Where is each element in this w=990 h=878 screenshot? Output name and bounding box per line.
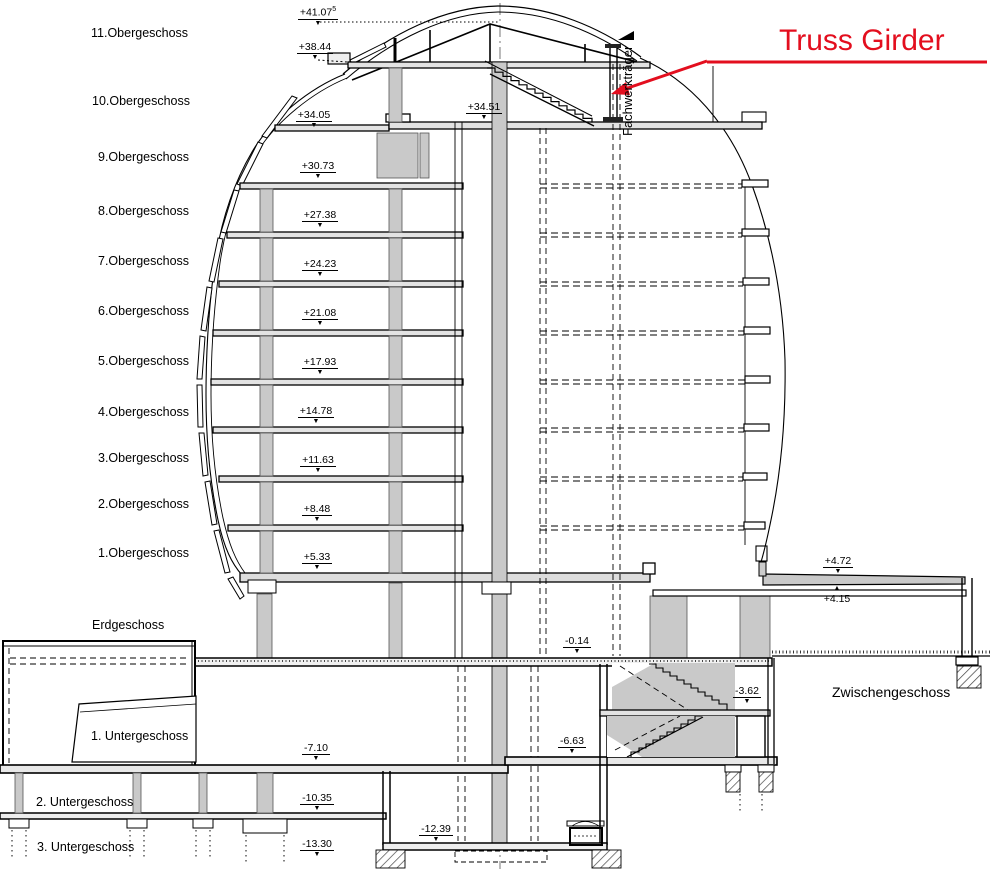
elevation-triangle-down-icon: ▼ <box>296 517 338 523</box>
elevation-triangle-up-icon: ▲ <box>816 586 858 592</box>
floor-label-8-obergeschoss: 8.Obergeschoss <box>98 204 189 218</box>
foundation-hatch <box>957 666 981 688</box>
elevation-marker-10-35: -10.35▼ <box>296 792 338 812</box>
elevation-triangle-down-icon: ▼ <box>296 806 338 812</box>
elevation-marker-34-51: +34.51▼ <box>463 101 505 121</box>
elevation-triangle-down-icon: ▼ <box>297 468 339 474</box>
right-facade <box>640 58 785 562</box>
elevation-marker-5-33: +5.33▼ <box>296 551 338 571</box>
elevation-marker-30-73: +30.73▼ <box>297 160 339 180</box>
elevation-marker-0-14: -0.14▼ <box>556 635 598 655</box>
floor-label-11-obergeschoss: 11.Obergeschoss <box>91 26 188 40</box>
elevation-marker-3-62: -3.62▼ <box>726 685 768 705</box>
floor-label-3-obergeschoss: 3.Obergeschoss <box>98 451 189 465</box>
elevation-marker-24-23: +24.23▼ <box>299 258 341 278</box>
elevation-triangle-down-icon: ▼ <box>295 756 337 762</box>
elevation-marker-13-30: -13.30▼ <box>296 838 338 858</box>
section-drawing: 11.Obergeschoss 10.Obergeschoss 9.Oberge… <box>0 0 990 878</box>
truss-girder-annotation-label: Truss Girder <box>779 24 990 58</box>
floor-label-3-untergeschoss: 3. Untergeschoss <box>37 840 134 854</box>
elevation-marker-27-38: +27.38▼ <box>299 209 341 229</box>
elevation-triangle-down-icon: ▼ <box>295 419 337 425</box>
floor-label-1-untergeschoss: 1. Untergeschoss <box>91 729 188 743</box>
elevation-marker-4-15: ▲+4.15 <box>816 586 858 605</box>
floor-label-9-obergeschoss: 9.Obergeschoss <box>98 150 189 164</box>
mezzanine-slab <box>600 710 770 716</box>
elevation-triangle-down-icon: ▼ <box>463 115 505 121</box>
elevation-triangle-down-icon: ▼ <box>297 21 339 27</box>
elevation-triangle-down-icon: ▼ <box>556 649 598 655</box>
floor-label-6-obergeschoss: 6.Obergeschoss <box>98 304 189 318</box>
elevation-marker-12-39: -12.39▼ <box>415 823 457 843</box>
truss-girder-annotation-arrow <box>611 61 987 95</box>
elevation-marker-11-63: +11.63▼ <box>297 454 339 474</box>
elevation-marker-8-48: +8.48▼ <box>296 503 338 523</box>
elevation-triangle-down-icon: ▼ <box>726 699 768 705</box>
floor-label-erdgeschoss: Erdgeschoss <box>92 618 164 632</box>
elevation-triangle-down-icon: ▼ <box>551 749 593 755</box>
building-section-linework <box>0 0 990 878</box>
roof <box>328 6 641 80</box>
floor-slabs <box>211 62 762 582</box>
mezzanine-label: Zwischengeschoss <box>832 684 950 700</box>
elevation-triangle-down-icon: ▼ <box>293 123 335 129</box>
floor-label-7-obergeschoss: 7.Obergeschoss <box>98 254 189 268</box>
elevation-triangle-down-icon: ▼ <box>294 55 336 61</box>
elevation-marker-4-72: +4.72▼ <box>817 555 859 575</box>
elevation-triangle-down-icon: ▼ <box>299 321 341 327</box>
floor-label-10-obergeschoss: 10.Obergeschoss <box>92 94 190 108</box>
elevation-triangle-down-icon: ▼ <box>299 223 341 229</box>
floor-label-2-untergeschoss: 2. Untergeschoss <box>36 795 133 809</box>
floor-label-1-obergeschoss: 1.Obergeschoss <box>98 546 189 560</box>
elevation-triangle-down-icon: ▼ <box>817 569 859 575</box>
hidden-floor-lines <box>540 180 770 530</box>
elevation-triangle-down-icon: ▼ <box>415 837 457 843</box>
floor-label-2-obergeschoss: 2.Obergeschoss <box>98 497 189 511</box>
fachwerktraeger-label: Fachwerkträger <box>620 30 635 136</box>
elevation-triangle-down-icon: ▼ <box>299 370 341 376</box>
elevation-marker-34-05: +34.05▼ <box>293 109 335 129</box>
floor-label-4-obergeschoss: 4.Obergeschoss <box>98 405 189 419</box>
elevation-marker-14-78: +14.78▼ <box>295 405 337 425</box>
floor-label-5-obergeschoss: 5.Obergeschoss <box>98 354 189 368</box>
elevation-triangle-down-icon: ▼ <box>297 174 339 180</box>
elevation-marker-38-44: +38.44▼ <box>294 41 336 61</box>
elevation-triangle-down-icon: ▼ <box>296 852 338 858</box>
basement-stairs <box>600 658 774 764</box>
elevation-triangle-down-icon: ▼ <box>299 272 341 278</box>
elevation-marker-21-08: +21.08▼ <box>299 307 341 327</box>
core-shaft <box>455 62 620 843</box>
elevation-marker-41-07: +41.075▼ <box>297 4 339 27</box>
left-annex <box>3 641 196 767</box>
elevation-marker-6-63: -6.63▼ <box>551 735 593 755</box>
elevation-triangle-down-icon: ▼ <box>296 565 338 571</box>
ramp-slab <box>763 574 965 585</box>
elevation-marker-7-10: -7.10▼ <box>295 742 337 762</box>
elevation-marker-17-93: +17.93▼ <box>299 356 341 376</box>
